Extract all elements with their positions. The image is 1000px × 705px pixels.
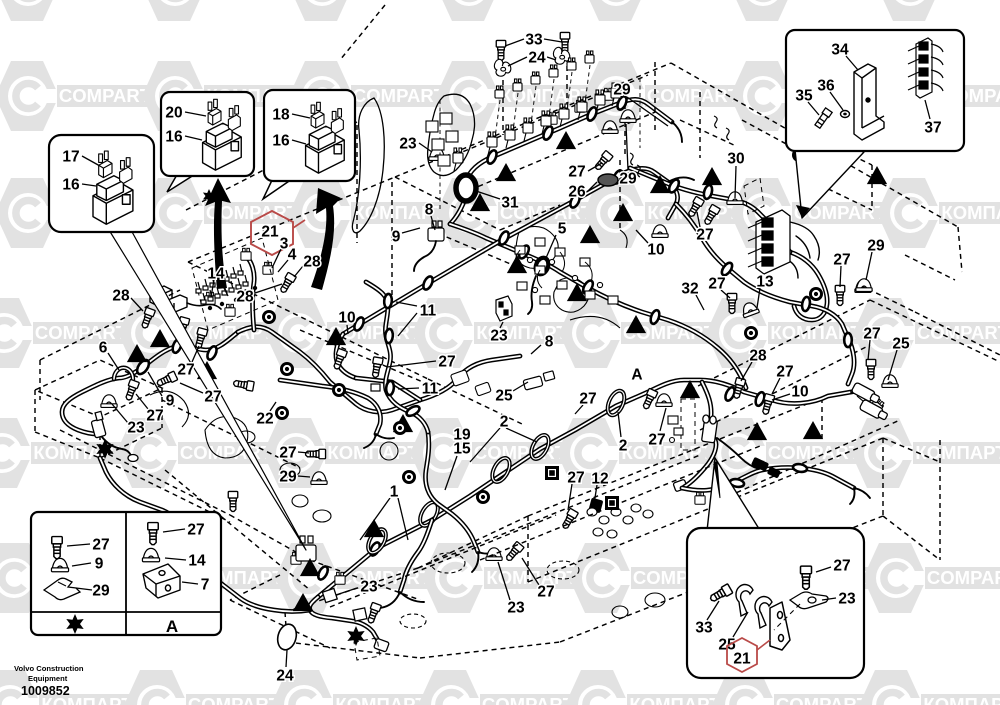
svg-text:23: 23 [360,579,378,596]
svg-text:27: 27 [833,252,850,269]
svg-text:33: 33 [525,32,543,49]
svg-text:11: 11 [422,381,439,398]
svg-text:25: 25 [495,388,513,405]
svg-text:28: 28 [112,288,130,305]
svg-text:COMPART: COMPART [776,694,869,705]
svg-text:21: 21 [733,651,751,668]
svg-text:27: 27 [567,470,584,487]
svg-text:10: 10 [791,384,808,401]
svg-text:27: 27 [863,326,880,343]
svg-text:29: 29 [867,238,885,255]
svg-text:Volvo Construction: Volvo Construction [14,664,84,673]
svg-text:23: 23 [127,420,145,437]
svg-text:27: 27 [187,522,204,539]
svg-text:4: 4 [288,247,297,264]
svg-text:5: 5 [558,221,567,238]
svg-text:1: 1 [390,484,399,501]
svg-text:36: 36 [817,78,835,95]
svg-text:26: 26 [568,184,586,201]
svg-text:COMPART: COMPART [180,442,273,463]
svg-text:COMPART: COMPART [188,694,281,705]
svg-text:27: 27 [579,391,596,408]
svg-text:35: 35 [795,88,813,105]
svg-text:29: 29 [92,583,110,600]
svg-text:27: 27 [776,364,793,381]
svg-text:2: 2 [619,438,628,455]
svg-text:6: 6 [99,340,108,357]
svg-text:A: A [166,617,178,636]
svg-text:7: 7 [201,577,210,594]
svg-text:8: 8 [545,334,554,351]
svg-text:23: 23 [507,600,525,617]
svg-text:COMPART: COMPART [482,694,575,705]
svg-text:23: 23 [399,136,417,153]
svg-text:20: 20 [165,105,182,122]
svg-text:28: 28 [236,289,254,306]
svg-text:27: 27 [537,584,554,601]
svg-text:КОМПАРТ: КОМПАРТ [327,442,419,463]
svg-text:9: 9 [166,393,175,410]
svg-text:28: 28 [303,254,321,271]
svg-text:28: 28 [749,348,767,365]
svg-text:23: 23 [838,591,856,608]
svg-text:27: 27 [146,408,163,425]
svg-text:24: 24 [276,668,294,685]
svg-text:13: 13 [756,274,774,291]
svg-text:37: 37 [924,120,941,137]
svg-text:33: 33 [695,620,713,637]
svg-text:11: 11 [420,303,437,320]
svg-text:27: 27 [648,432,665,449]
svg-text:КОМПАРТ: КОМПАРТ [335,694,427,705]
svg-text:8: 8 [425,202,434,219]
svg-text:29: 29 [279,469,297,486]
svg-text:29: 29 [613,82,631,99]
svg-text:27: 27 [696,227,713,244]
svg-text:24: 24 [528,50,546,67]
svg-text:16: 16 [165,129,183,146]
svg-text:15: 15 [453,441,471,458]
svg-text:27: 27 [438,354,455,371]
svg-text:14: 14 [207,266,225,283]
svg-text:29: 29 [619,171,637,188]
svg-text:14: 14 [188,553,206,570]
svg-text:10: 10 [338,310,355,327]
svg-text:КОМПАРТ: КОМПАРТ [621,442,713,463]
svg-text:КОМПАРТ: КОМПАРТ [923,694,1000,705]
svg-text:10: 10 [647,242,664,259]
svg-text:22: 22 [256,411,273,428]
svg-text:27: 27 [279,445,296,462]
svg-text:31: 31 [501,195,519,212]
svg-text:COMPART: COMPART [927,567,1000,588]
svg-text:1009852: 1009852 [21,684,70,698]
svg-text:КОМПАРТ: КОМПАРТ [629,694,721,705]
svg-text:12: 12 [591,471,608,488]
svg-text:25: 25 [892,336,910,353]
svg-text:18: 18 [272,107,290,124]
svg-text:16: 16 [62,177,80,194]
svg-text:27: 27 [204,389,221,406]
svg-text:A: A [631,367,642,384]
svg-text:КОМПАРТ: КОМПАРТ [941,202,1000,223]
svg-text:21: 21 [261,224,279,241]
svg-text:КОМПАРТ: КОМПАРТ [915,442,1000,463]
svg-text:27: 27 [833,558,850,575]
svg-text:2: 2 [500,414,509,431]
svg-text:23: 23 [490,328,508,345]
svg-text:9: 9 [392,229,401,246]
svg-text:Equipment: Equipment [28,674,68,683]
svg-text:27: 27 [708,276,725,293]
svg-text:COMPART: COMPART [917,322,1000,343]
svg-text:27: 27 [177,362,194,379]
svg-text:30: 30 [727,151,744,168]
svg-text:17: 17 [62,149,79,166]
svg-text:COMPART: COMPART [647,85,740,106]
svg-text:27: 27 [568,164,585,181]
svg-text:9: 9 [95,556,104,573]
svg-text:32: 32 [681,281,698,298]
svg-text:COMPART: COMPART [59,85,152,106]
svg-text:27: 27 [92,537,109,554]
svg-text:16: 16 [272,133,290,150]
